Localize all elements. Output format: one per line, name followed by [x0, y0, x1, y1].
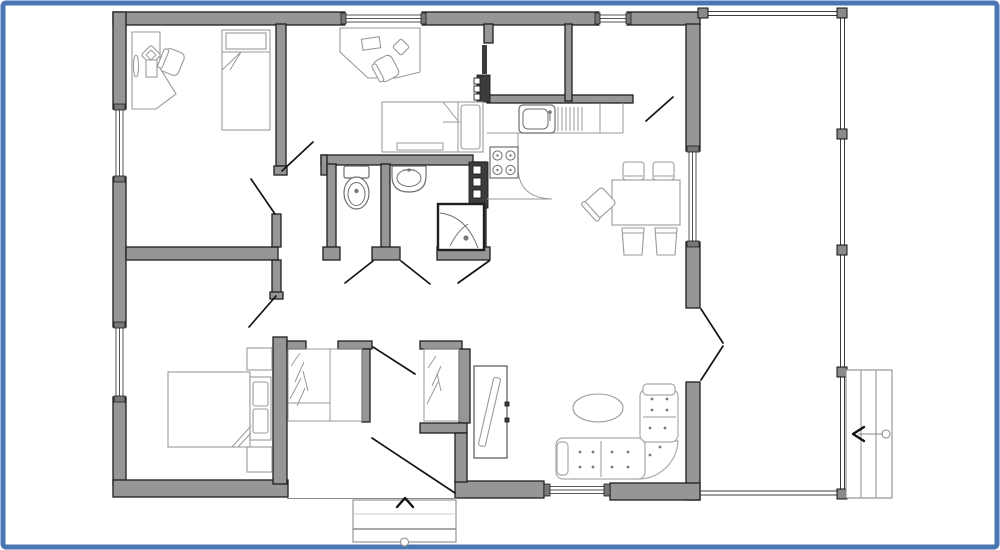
floor-plan-page: [0, 0, 1000, 550]
nightstand-top: [247, 348, 272, 370]
master-bedroom-door: [249, 296, 276, 327]
laptop-icon: [361, 37, 380, 50]
small-bedroom-room: [340, 28, 483, 152]
window-top-2: [595, 12, 631, 25]
wardrobe-2: [424, 349, 459, 421]
dining-area: [581, 162, 680, 255]
single-bed: [382, 102, 483, 152]
entrance-steps: [287, 498, 457, 546]
nightstand-bottom: [247, 447, 272, 472]
office-single-bed: [222, 30, 270, 130]
master-bedroom-room: [168, 348, 272, 472]
window-left-2: [114, 322, 125, 402]
entrance-door: [372, 438, 455, 493]
coffee-table: [573, 394, 623, 422]
dish-drainer: [558, 107, 582, 131]
window-left-1: [114, 104, 125, 182]
tv-cabinet: [474, 366, 509, 458]
stairs-path-start-marker: [882, 430, 890, 438]
desk-paper: [146, 60, 157, 77]
porch: [698, 8, 892, 499]
office-door: [251, 179, 275, 214]
wardrobe-1: [288, 349, 362, 421]
entry-path-start-marker: [401, 538, 409, 546]
toilet-fixture: [344, 166, 369, 209]
dining-table: [612, 180, 680, 225]
living-room: [474, 366, 678, 479]
wc-room: [344, 166, 369, 209]
washbasin-fixture: [392, 166, 426, 192]
window-top-1: [341, 12, 426, 25]
stove: [490, 147, 518, 178]
utility-room-door: [646, 97, 673, 121]
hall-wardrobes: [288, 349, 459, 421]
porch-railing: [700, 11, 845, 497]
double-bed: [168, 372, 271, 447]
kitchen-sink: [519, 105, 555, 133]
bathroom-door: [401, 261, 430, 284]
desk-tray: [133, 55, 138, 77]
hall-kitchen-door: [458, 261, 489, 283]
patio-door-upper-leaf: [701, 309, 723, 343]
hall-passage-door: [373, 347, 415, 374]
kitchen-room: [487, 103, 623, 199]
floor-plan-drawing: [0, 0, 1000, 550]
shower-cabin: [438, 204, 484, 250]
porch-posts: [698, 8, 847, 499]
window-bottom-living: [544, 484, 610, 496]
porch-stairs: [846, 370, 892, 498]
patio-door-lower-leaf: [701, 346, 723, 380]
window-right-dining: [687, 146, 699, 247]
wc-door: [345, 261, 373, 283]
office-room: [132, 30, 270, 130]
